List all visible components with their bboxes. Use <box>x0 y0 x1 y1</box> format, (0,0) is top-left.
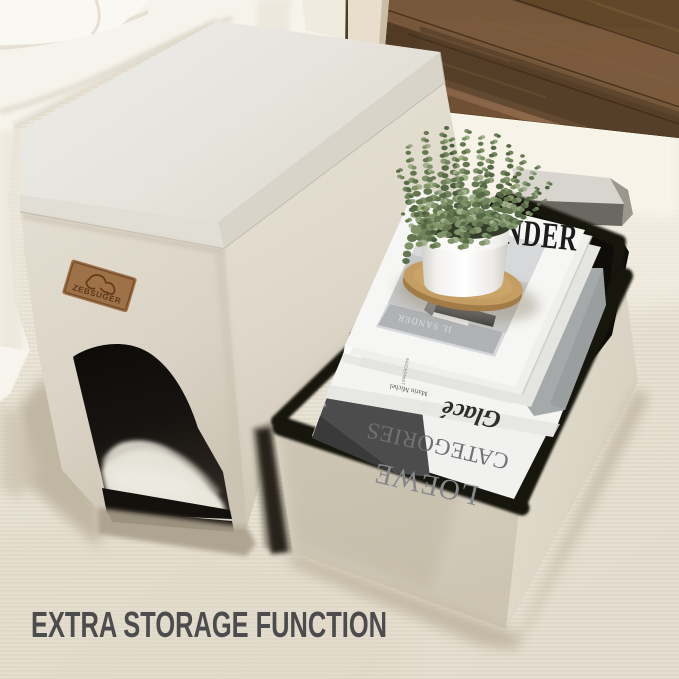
svg-text:EXTRA STORAGE FUNCTION: EXTRA STORAGE FUNCTION <box>31 604 387 645</box>
